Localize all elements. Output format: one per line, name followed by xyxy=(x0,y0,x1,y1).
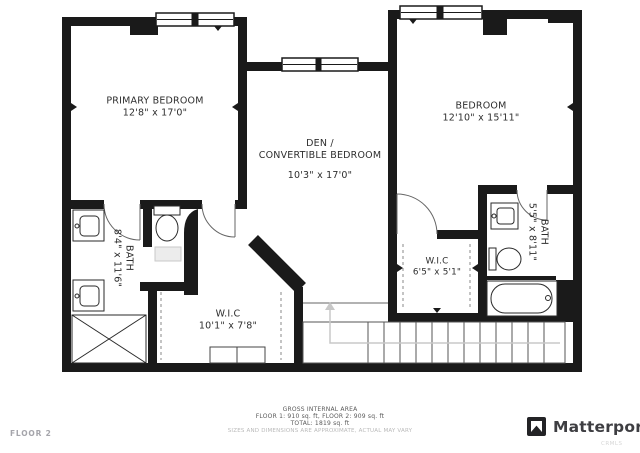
room-label-den: DEN / CONVERTIBLE BEDROOM 10'3" x 17'0" xyxy=(259,138,381,182)
sink-icon xyxy=(491,203,518,229)
room-name: W.I.C xyxy=(425,257,448,267)
window xyxy=(156,13,234,26)
door-arc-primary-bedroom xyxy=(202,204,235,237)
bench-icon xyxy=(155,247,181,261)
room-dims: 6'5" x 5'1" xyxy=(413,268,461,279)
room-name: CONVERTIBLE BEDROOM xyxy=(259,150,381,161)
dresser-icon xyxy=(210,347,265,363)
sink-icon xyxy=(73,280,104,311)
area-title: GROSS INTERNAL AREA xyxy=(0,406,640,413)
room-name: BEDROOM xyxy=(455,101,506,112)
matterport-logo-text: Matterport xyxy=(553,418,640,436)
shower-icon xyxy=(72,315,146,363)
room-name: W.I.C xyxy=(216,309,241,320)
room-label-primary-bedroom: PRIMARY BEDROOM 12'8" x 17'0" xyxy=(106,96,203,121)
window xyxy=(282,58,358,71)
bathtub-icon xyxy=(487,281,557,316)
room-dims: 10'1" x 7'8" xyxy=(199,321,257,333)
room-name: BATH xyxy=(538,219,549,245)
room-label-wic-right: W.I.C 6'5" x 5'1" xyxy=(413,257,461,280)
window xyxy=(400,6,482,19)
windows xyxy=(156,6,482,71)
room-label-bedroom: BEDROOM 12'10" x 15'11" xyxy=(443,101,520,126)
room-dims: 12'10" x 15'11" xyxy=(443,113,520,125)
door-arc-bedroom-wic xyxy=(397,194,437,234)
matterport-logo-icon xyxy=(527,417,546,436)
room-dims: 12'8" x 17'0" xyxy=(106,108,203,120)
room-label-bath-left: BATH 8'4" x 11'6" xyxy=(110,229,135,287)
room-label-wic-left: W.I.C 10'1" x 7'8" xyxy=(199,309,257,334)
room-name: BATH xyxy=(123,245,134,271)
room-label-bath-right: BATH 5'5" x 8'11" xyxy=(525,203,550,261)
floor-plan-page: PRIMARY BEDROOM 12'8" x 17'0" DEN / CONV… xyxy=(0,0,640,453)
sink-icon xyxy=(73,210,104,241)
room-name: PRIMARY BEDROOM xyxy=(106,96,203,107)
room-name: DEN / xyxy=(306,138,334,149)
floor-label: FLOOR 2 xyxy=(10,429,52,438)
toilet-icon xyxy=(489,248,521,270)
room-dims: 10'3" x 17'0" xyxy=(259,170,381,182)
room-dims: 5'5" x 8'11" xyxy=(525,203,537,261)
matterport-logo: Matterport xyxy=(527,417,640,436)
room-dims: 8'4" x 11'6" xyxy=(110,229,122,287)
toilet-icon xyxy=(154,206,180,241)
watermark-text: CRMLS xyxy=(601,441,622,447)
